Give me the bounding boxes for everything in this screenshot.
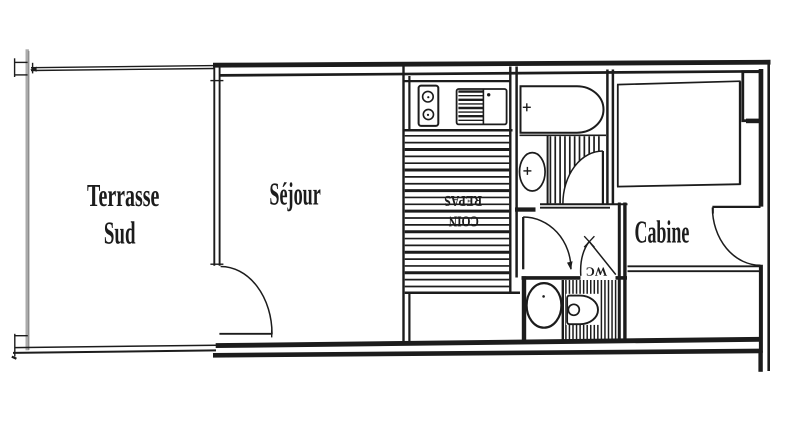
svg-text:COIN: COIN (449, 212, 479, 228)
svg-text:REPAS: REPAS (444, 192, 482, 208)
svg-text:Sud: Sud (104, 215, 136, 251)
svg-text:Terrasse: Terrasse (87, 177, 159, 213)
svg-text:Cabine: Cabine (635, 214, 690, 250)
svg-text:Séjour: Séjour (269, 176, 320, 212)
svg-text:WC: WC (586, 265, 608, 279)
